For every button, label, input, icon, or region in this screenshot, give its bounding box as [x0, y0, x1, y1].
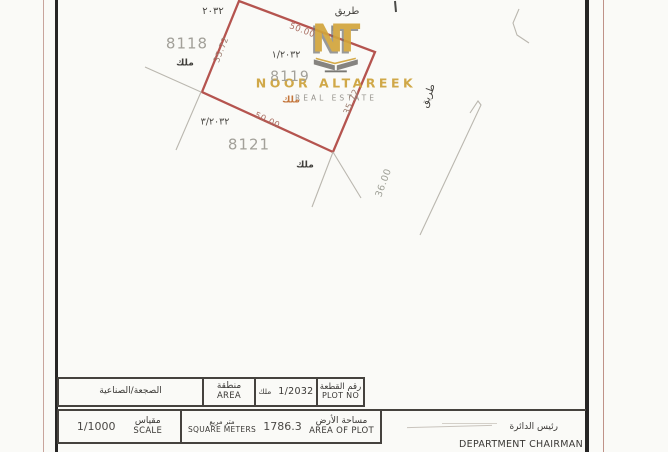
plot-area-value: 1786.3	[263, 420, 302, 433]
ownership-label-8118: ملك	[176, 60, 194, 69]
plot-area-label-en: AREA OF PLOT	[309, 427, 374, 436]
watermark-tagline-text: REAL ESTATE	[256, 94, 416, 103]
scale-cell: 1/1000 مقياس SCALE	[59, 411, 180, 442]
survey-plan-document: NT NOOR ALTAREEK REAL ESTATE ٢٠٣٢ طريق ط…	[0, 0, 668, 452]
ownership-label-8119: ملك	[282, 97, 300, 106]
parcel-ref-1-2032: ١/٢٠٣٢	[272, 50, 301, 60]
ownership-type: ملك	[258, 388, 271, 396]
plot-number-8118: 8118	[166, 37, 208, 52]
scale-label-en: SCALE	[133, 427, 162, 436]
plot-number-8119: 8119	[270, 70, 310, 84]
plot-no-label-en: PLOT NO	[322, 392, 359, 401]
scan-artifact-mark	[395, 1, 396, 12]
signature-stroke-2	[442, 423, 497, 424]
boundary-line-top-right	[513, 9, 529, 43]
plot-number-8121: 8121	[228, 138, 270, 153]
parcel-ref-3-2032: ٣/٢٠٣٢	[201, 117, 230, 127]
ownership-label-8121: ملك	[296, 162, 314, 171]
area-label-en: AREA	[217, 392, 241, 401]
plot-no-label-cell: رقم القطعة PLOT NO	[316, 379, 363, 405]
plot-no-value: 1/2032	[278, 387, 313, 397]
boundary-line-bottom-right	[333, 152, 361, 198]
scale-value: 1/1000	[77, 420, 116, 433]
signature-stroke	[407, 425, 492, 428]
chairman-label-ar: رئيس الدائرة	[509, 422, 558, 432]
plot-info-table-row2: 1/1000 مقياس SCALE متر مربع SQUARE METER…	[57, 409, 382, 444]
units-en: SQUARE METERS	[188, 426, 256, 434]
boundary-line-left	[145, 67, 201, 150]
road-label-top: طريق	[335, 7, 360, 17]
plot-area-cell: متر مربع SQUARE METERS 1786.3 مساحة الأر…	[180, 411, 380, 442]
chairman-label-en: DEPARTMENT CHAIRMAN	[459, 439, 583, 450]
block-number-label: ٢٠٣٢	[202, 7, 223, 17]
area-value: الصجعة/الصناعية	[99, 387, 161, 397]
plot-info-table-row1: الصجعة/الصناعية منطقة AREA ملك 1/2032 رق…	[57, 377, 365, 407]
watermark: NT NOOR ALTAREEK REAL ESTATE	[256, 21, 416, 102]
area-label-cell: منطقة AREA	[202, 379, 254, 405]
chairman-signature-cell: رئيس الدائرة DEPARTMENT CHAIRMAN	[382, 409, 586, 452]
area-value-cell: الصجعة/الصناعية	[59, 379, 202, 405]
boundary-line-bottom-left	[312, 152, 333, 207]
plot-no-value-cell: ملك 1/2032	[254, 379, 316, 405]
road-line-right	[420, 101, 481, 235]
